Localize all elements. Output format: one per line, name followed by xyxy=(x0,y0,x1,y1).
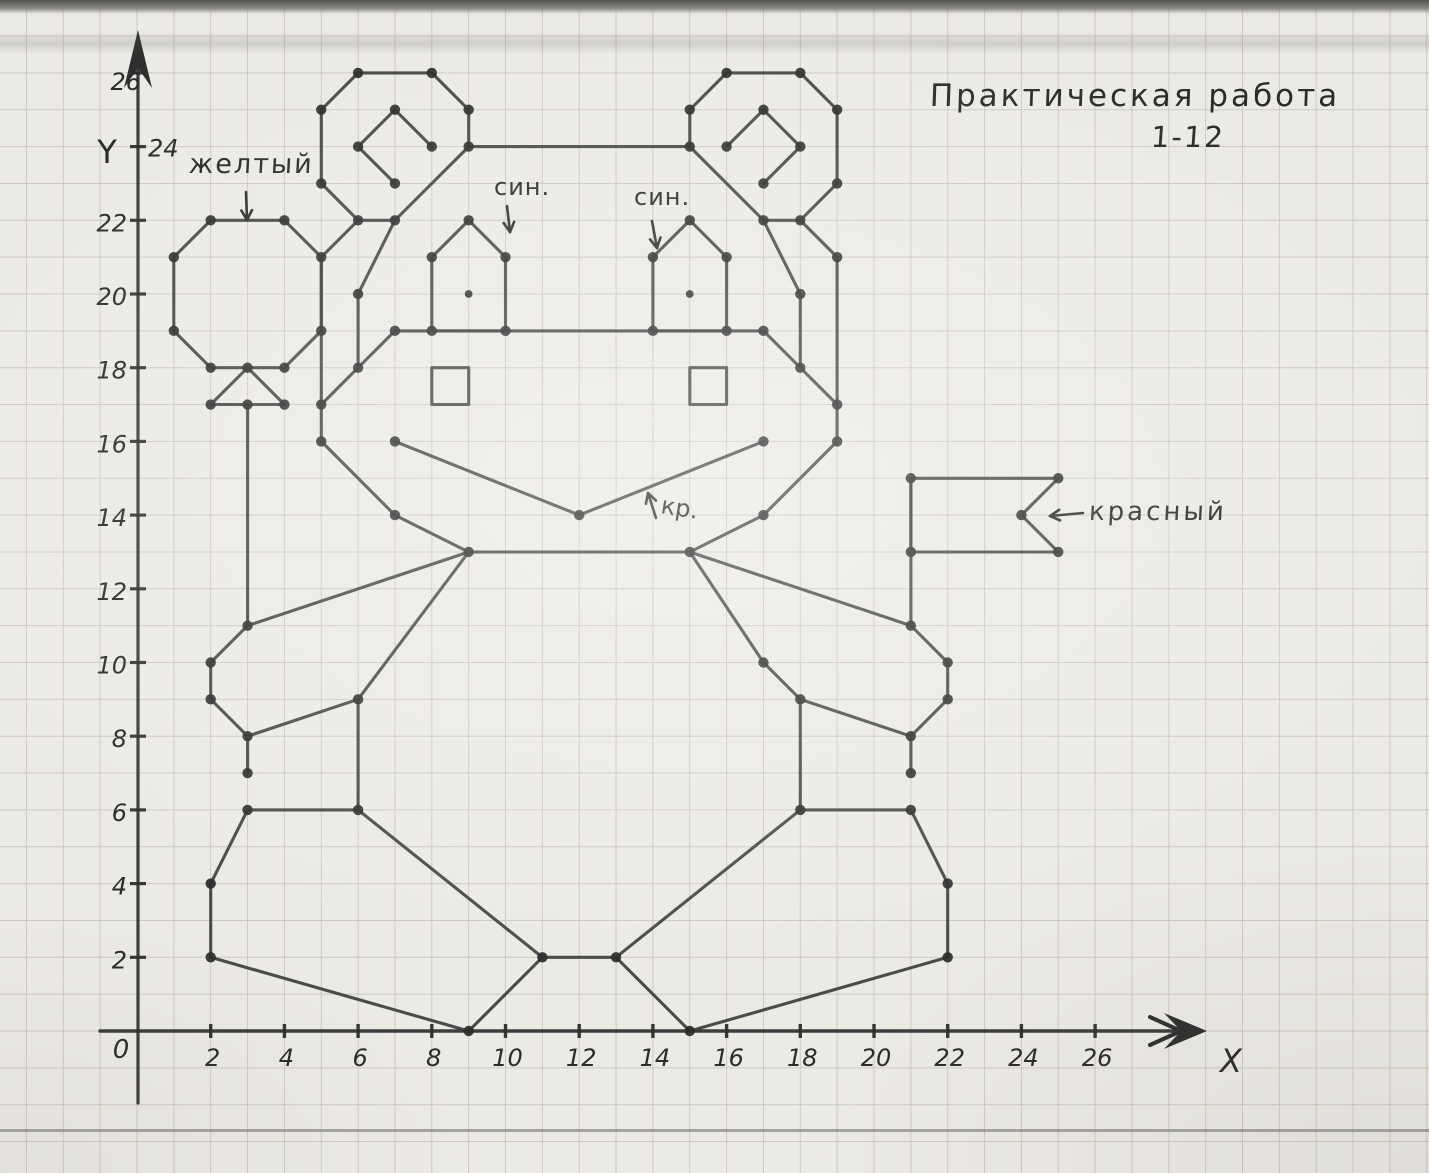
svg-text:6: 6 xyxy=(352,1044,367,1072)
svg-text:6: 6 xyxy=(112,799,127,827)
svg-text:14: 14 xyxy=(640,1044,671,1072)
svg-text:2: 2 xyxy=(112,946,127,974)
color-label-red-flag: красный xyxy=(1088,497,1227,527)
svg-text:0: 0 xyxy=(113,1035,130,1065)
worksheet-title: Практическая работа xyxy=(899,78,1370,114)
svg-text:4: 4 xyxy=(112,873,127,901)
svg-text:X: X xyxy=(1218,1042,1243,1080)
svg-text:24: 24 xyxy=(148,135,179,163)
color-label-yellow: желтый xyxy=(188,149,314,180)
svg-text:12: 12 xyxy=(566,1044,597,1072)
svg-text:10: 10 xyxy=(492,1044,523,1072)
color-label-blue-left-eye: син. xyxy=(494,173,550,201)
svg-text:22: 22 xyxy=(96,209,127,237)
svg-text:2: 2 xyxy=(205,1044,220,1072)
svg-text:16: 16 xyxy=(713,1044,744,1072)
scan-top-edge xyxy=(0,0,1429,14)
svg-text:20: 20 xyxy=(96,283,127,311)
graph-paper-page: 2468101214161820222426246810121416182022… xyxy=(0,0,1429,1173)
worksheet-title-number: 1-12 xyxy=(1067,120,1309,154)
svg-text:26: 26 xyxy=(110,68,141,96)
color-label-red-mouth: кр. xyxy=(659,491,700,524)
color-label-blue-right-eye: син. xyxy=(634,183,690,211)
svg-text:24: 24 xyxy=(1008,1044,1039,1072)
svg-text:20: 20 xyxy=(861,1044,892,1072)
svg-text:16: 16 xyxy=(96,430,127,458)
svg-text:Y: Y xyxy=(96,133,117,171)
svg-text:8: 8 xyxy=(112,725,127,753)
svg-text:12: 12 xyxy=(96,578,127,606)
svg-text:22: 22 xyxy=(934,1044,965,1072)
page-fold-shadow xyxy=(0,32,1429,54)
svg-text:18: 18 xyxy=(96,357,127,385)
svg-text:18: 18 xyxy=(787,1044,818,1072)
svg-text:26: 26 xyxy=(1082,1044,1113,1072)
svg-text:8: 8 xyxy=(426,1044,441,1072)
svg-text:10: 10 xyxy=(96,652,127,680)
svg-text:4: 4 xyxy=(279,1044,294,1072)
page-bottom-rule xyxy=(0,1129,1429,1132)
svg-text:14: 14 xyxy=(96,504,127,532)
